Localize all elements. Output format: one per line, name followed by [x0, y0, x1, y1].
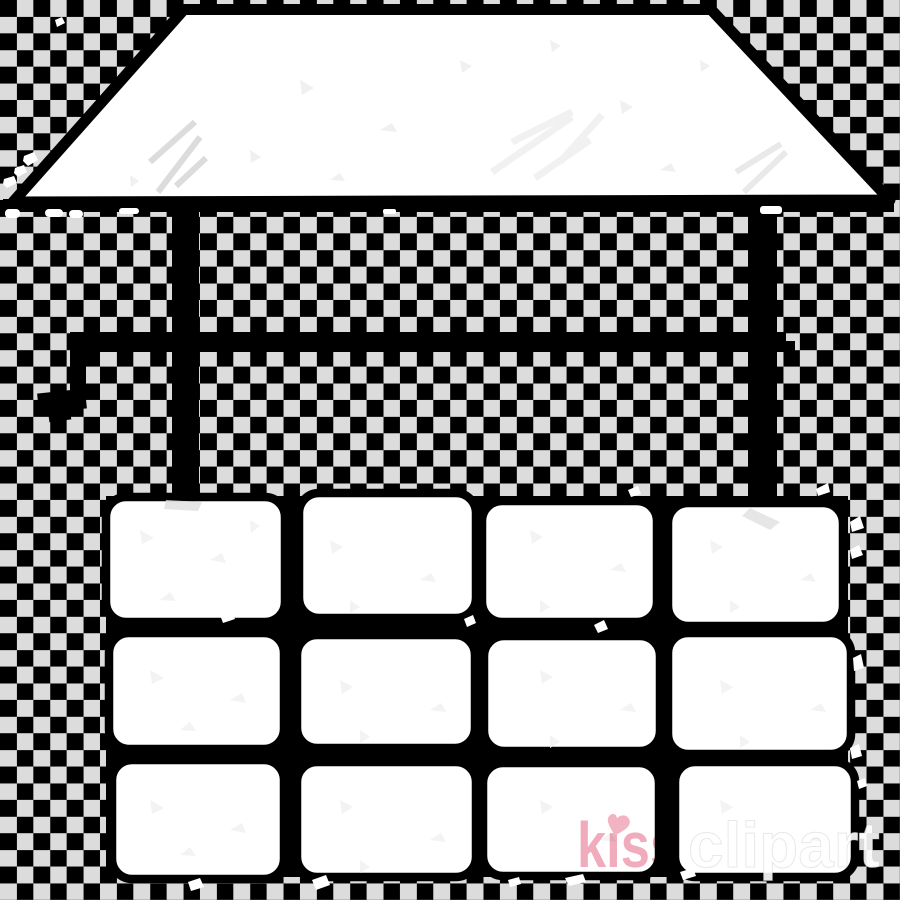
svg-text:clipart: clipart: [688, 809, 880, 881]
